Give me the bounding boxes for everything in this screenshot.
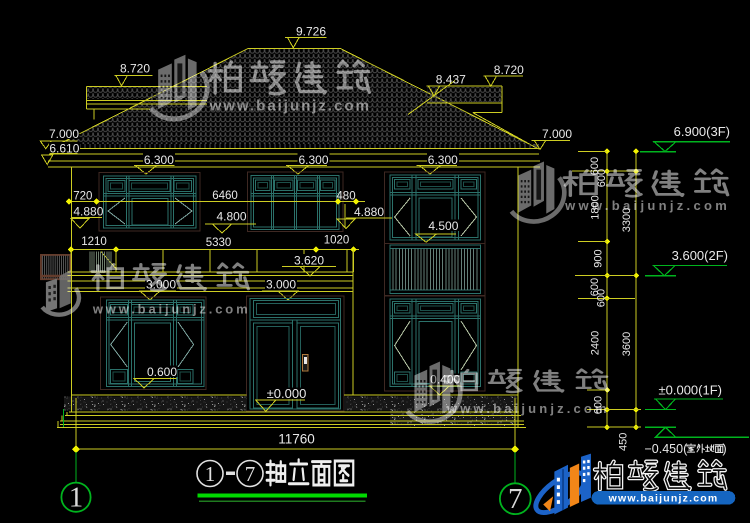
- svg-text:www.baijunjz.com: www.baijunjz.com: [608, 493, 719, 505]
- svg-text:7.000: 7.000: [49, 127, 79, 141]
- svg-text:4.500: 4.500: [428, 219, 458, 233]
- svg-text:600: 600: [596, 289, 608, 307]
- svg-text:−0.450(: −0.450(: [645, 442, 689, 456]
- svg-text:1: 1: [69, 482, 84, 514]
- svg-text:7: 7: [245, 462, 256, 486]
- svg-text:1: 1: [205, 462, 216, 486]
- svg-text:www.baijunjz.com: www.baijunjz.com: [446, 401, 610, 416]
- svg-text:4.880: 4.880: [354, 205, 384, 219]
- svg-text:±0.000(1F): ±0.000(1F): [659, 383, 723, 398]
- svg-text:2400: 2400: [590, 331, 602, 355]
- svg-text:7.000: 7.000: [542, 127, 572, 141]
- svg-text:3.000: 3.000: [266, 278, 296, 292]
- svg-text:3.620: 3.620: [294, 254, 324, 268]
- svg-text:8.720: 8.720: [494, 63, 524, 77]
- svg-text:±0.000: ±0.000: [267, 386, 307, 401]
- svg-text:www.baijunjz.com: www.baijunjz.com: [92, 302, 251, 317]
- svg-text:8.437: 8.437: [436, 72, 466, 86]
- svg-text:www.baijunjz.com: www.baijunjz.com: [564, 198, 730, 213]
- svg-text:450: 450: [618, 433, 630, 451]
- svg-text:6.900(3F): 6.900(3F): [674, 124, 730, 139]
- svg-text:0.600: 0.600: [147, 365, 177, 379]
- svg-text:6460: 6460: [212, 190, 238, 202]
- svg-text:480: 480: [336, 190, 355, 202]
- svg-text:4.880: 4.880: [73, 205, 103, 219]
- svg-text:900: 900: [593, 249, 605, 267]
- svg-text:3.600(2F): 3.600(2F): [672, 248, 728, 263]
- svg-text:3600: 3600: [621, 332, 633, 356]
- svg-text:): ): [723, 442, 727, 456]
- svg-text:1210: 1210: [81, 236, 107, 248]
- svg-text:9.726: 9.726: [296, 25, 326, 39]
- svg-text:5330: 5330: [206, 237, 232, 249]
- svg-text:1020: 1020: [324, 234, 350, 246]
- svg-text:4.800: 4.800: [216, 210, 246, 224]
- svg-text:www.baijunjz.com: www.baijunjz.com: [209, 98, 371, 115]
- svg-text:8.720: 8.720: [120, 62, 150, 76]
- svg-text:11760: 11760: [278, 432, 315, 447]
- svg-text:7: 7: [508, 483, 523, 515]
- svg-text:720: 720: [73, 190, 92, 202]
